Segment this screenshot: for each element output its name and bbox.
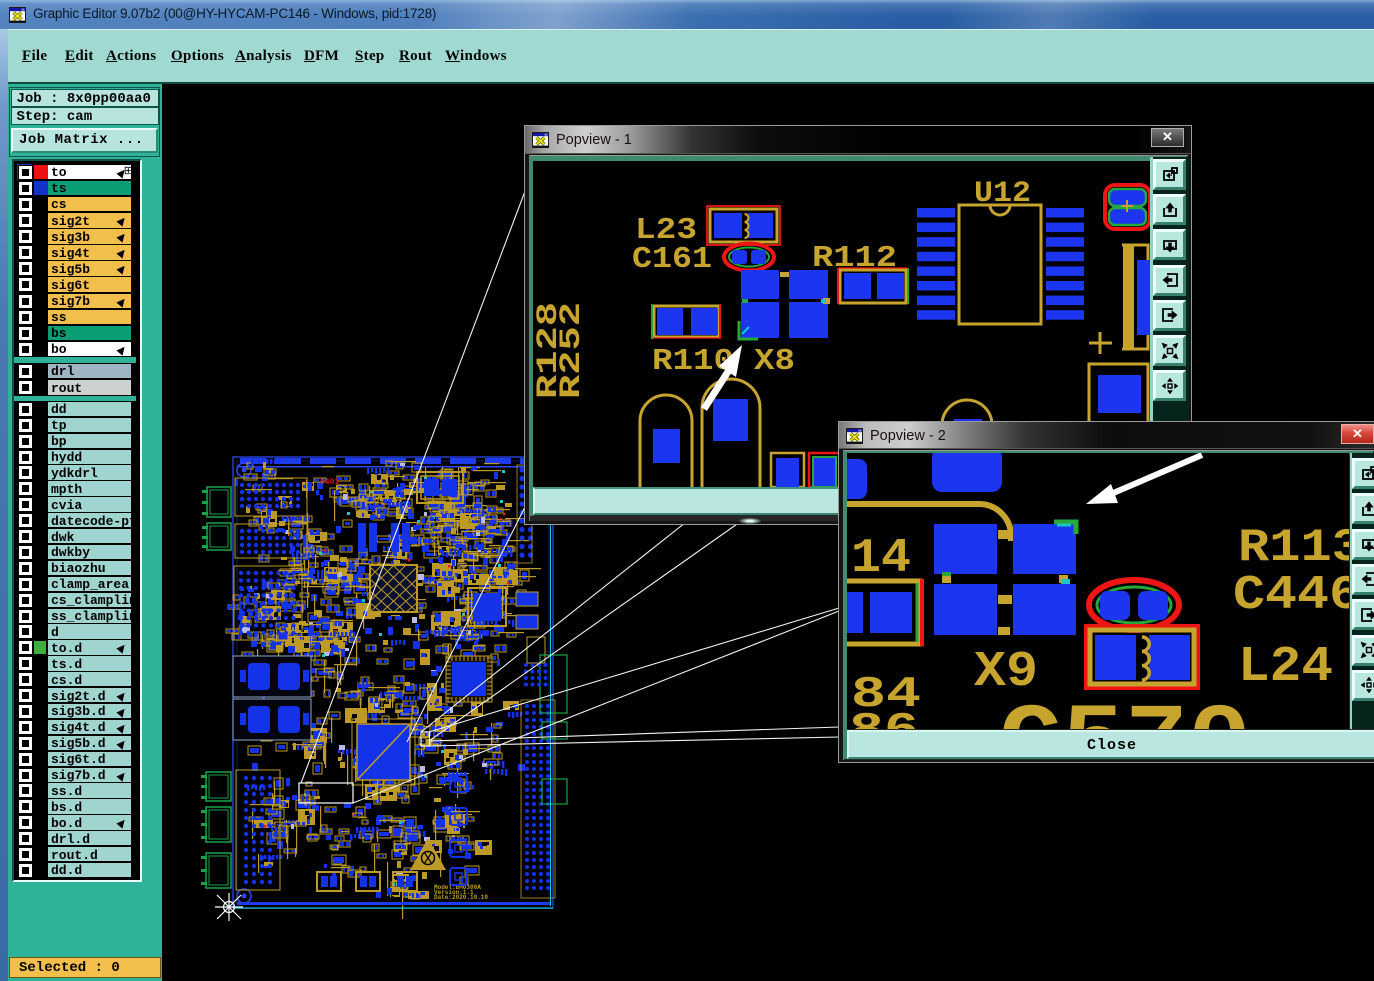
svg-text:C161: C161 xyxy=(632,242,712,277)
svg-text:R252: R252 xyxy=(555,302,589,399)
svg-text:Date:2020.10.10: Date:2020.10.10 xyxy=(434,894,488,901)
svg-text:14: 14 xyxy=(851,532,911,586)
svg-text:C570: C570 xyxy=(999,689,1251,729)
svg-text:0401: 0401 xyxy=(320,478,339,487)
svg-text:L24: L24 xyxy=(1238,639,1333,696)
svg-text:C446: C446 xyxy=(1233,569,1349,623)
svg-text:X8: X8 xyxy=(754,344,795,379)
svg-text:R110: R110 xyxy=(652,344,734,379)
svg-text:R113: R113 xyxy=(1238,522,1349,574)
svg-text:86: 86 xyxy=(849,706,919,729)
